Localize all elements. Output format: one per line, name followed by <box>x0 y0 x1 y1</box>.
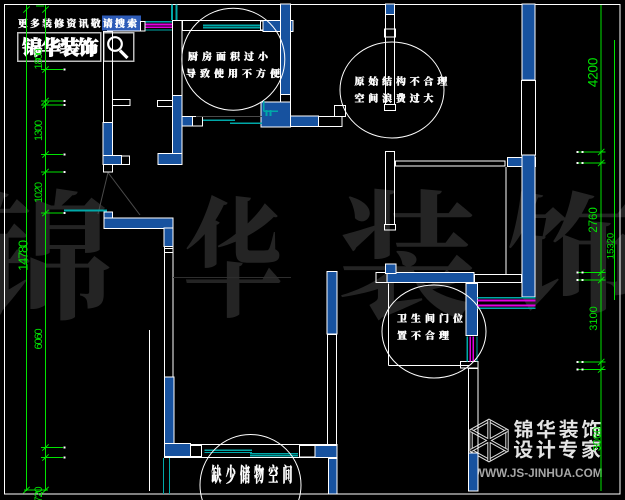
svg-text:3100: 3100 <box>588 306 600 330</box>
svg-text:3060: 3060 <box>592 427 604 451</box>
svg-text:15320: 15320 <box>606 233 617 259</box>
svg-text:WWW.JS-JINHUA.COM: WWW.JS-JINHUA.COM <box>474 466 603 480</box>
svg-text:1800: 1800 <box>33 48 45 69</box>
svg-text:1300: 1300 <box>33 120 45 141</box>
svg-text:4200: 4200 <box>586 58 601 87</box>
svg-text:6060: 6060 <box>33 328 45 349</box>
svg-text:14780: 14780 <box>16 240 31 271</box>
svg-text:2760: 2760 <box>588 207 600 233</box>
svg-text:1020: 1020 <box>33 182 45 203</box>
svg-text:720: 720 <box>33 486 45 500</box>
